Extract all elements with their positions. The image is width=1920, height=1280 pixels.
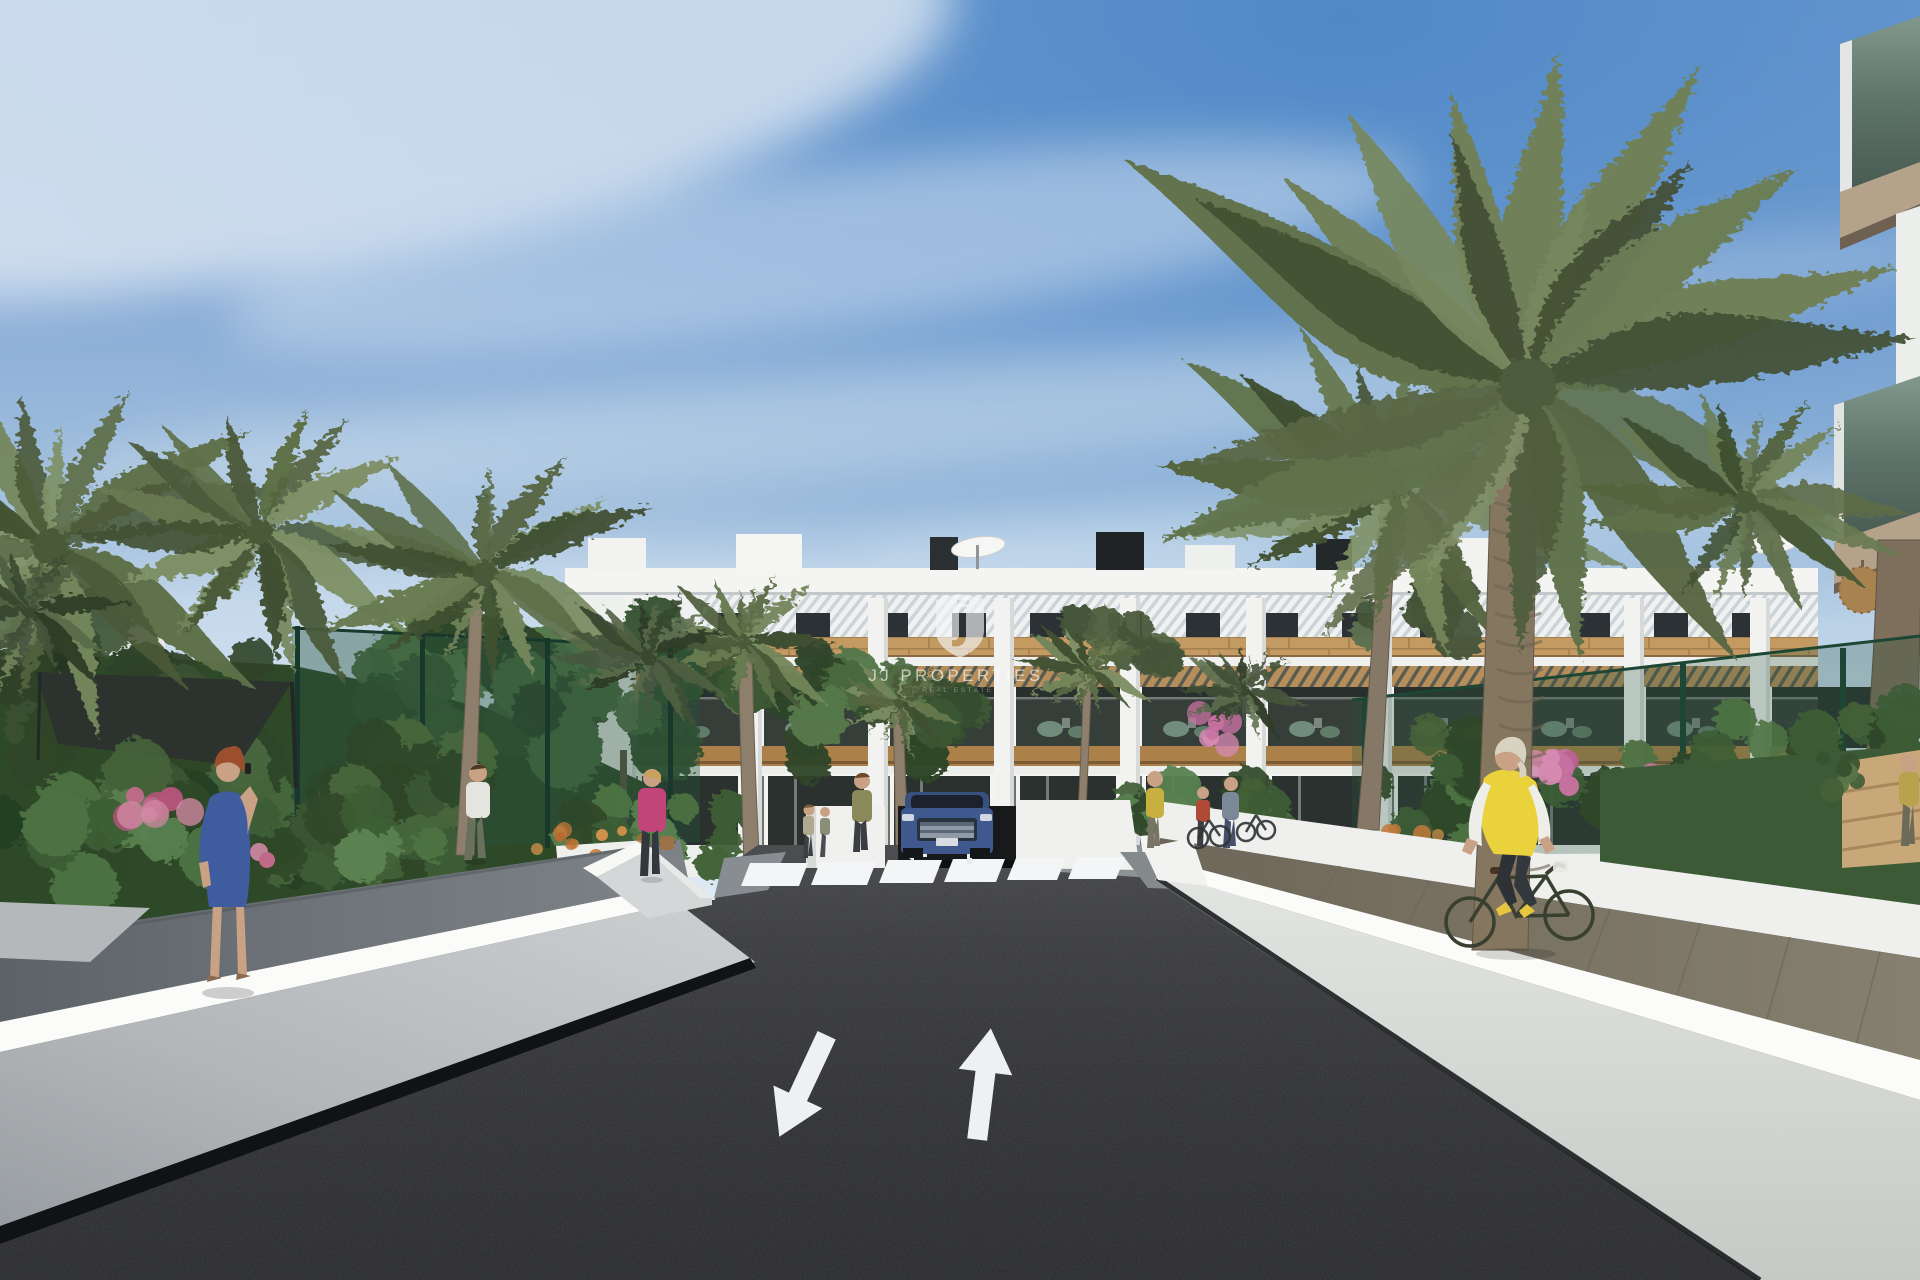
svg-text:REAL ESTATE: REAL ESTATE xyxy=(922,687,993,694)
svg-text:JJ PROPERTIES: JJ PROPERTIES xyxy=(868,666,1043,685)
